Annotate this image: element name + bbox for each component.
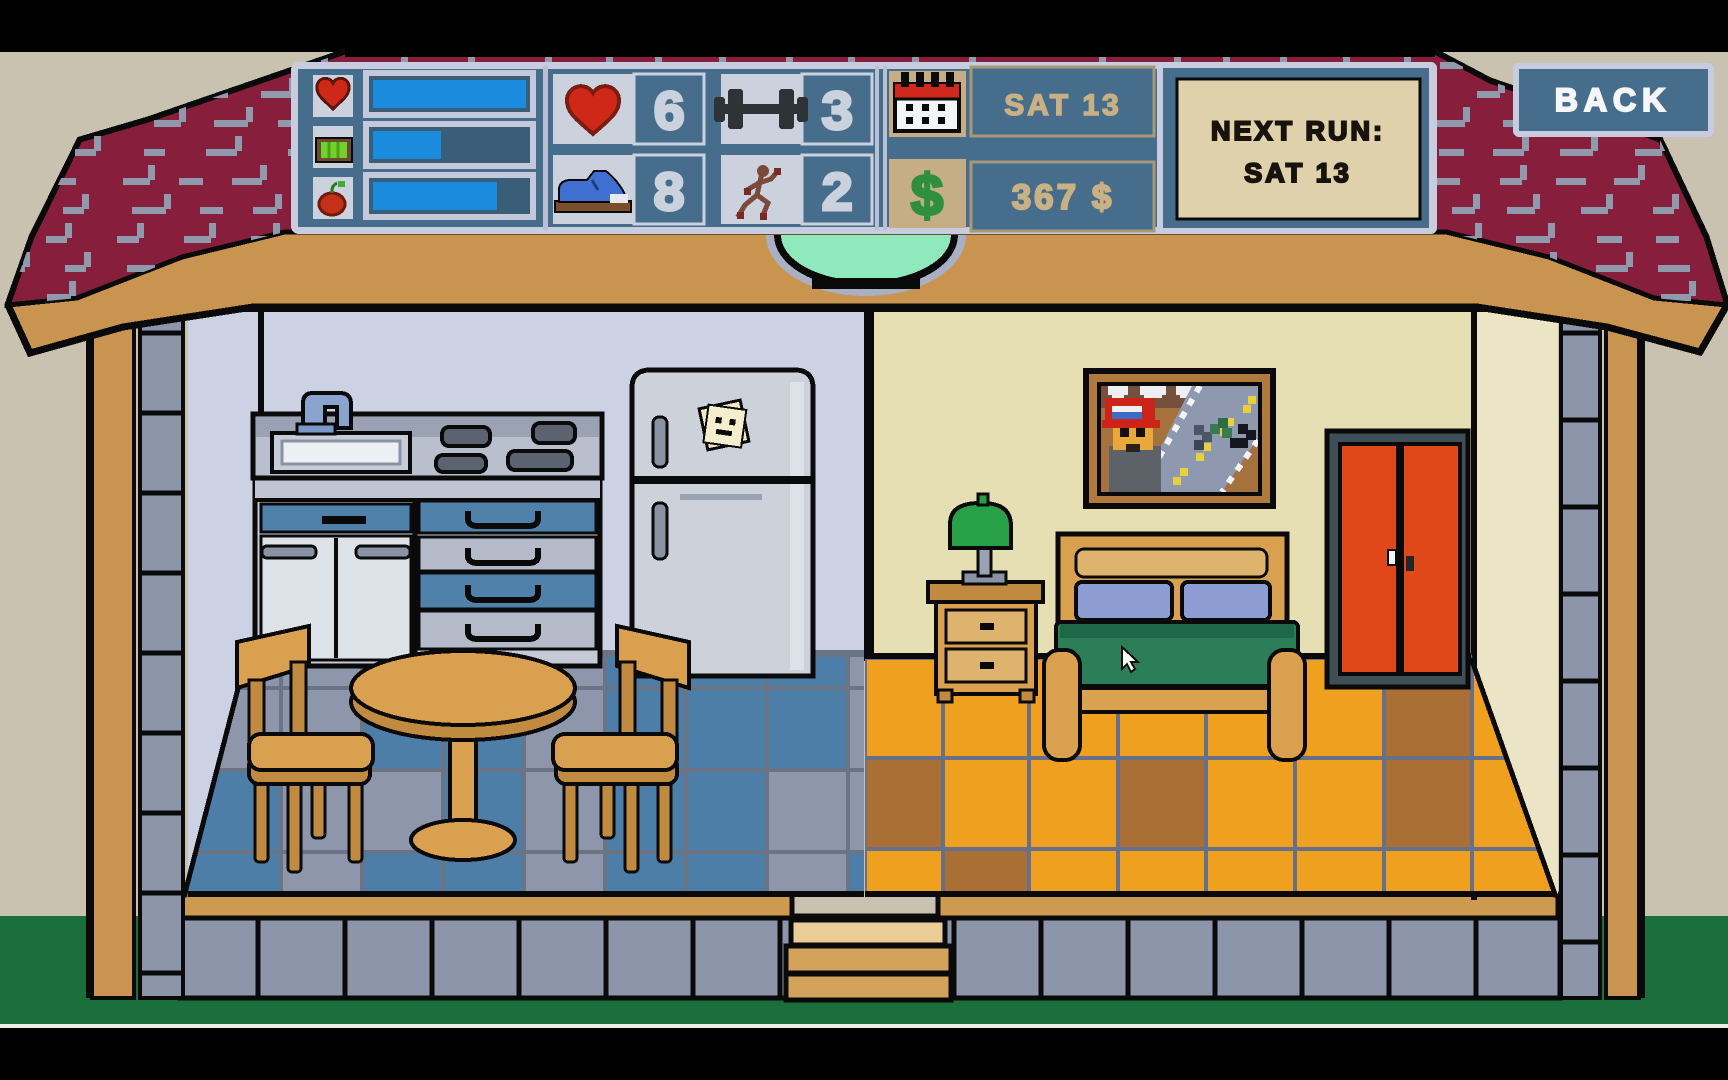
svg-text:SAT 13: SAT 13 <box>1244 158 1352 188</box>
svg-text:6: 6 <box>652 82 686 146</box>
svg-text:$: $ <box>911 163 943 228</box>
svg-text:2: 2 <box>820 163 854 227</box>
svg-text:BACK: BACK <box>1555 82 1671 118</box>
svg-text:SAT 13: SAT 13 <box>1004 89 1121 122</box>
svg-text:3: 3 <box>820 82 854 146</box>
svg-text:8: 8 <box>652 163 686 227</box>
svg-text:NEXT RUN:: NEXT RUN: <box>1211 116 1385 146</box>
svg-text:367 $: 367 $ <box>1012 178 1115 217</box>
